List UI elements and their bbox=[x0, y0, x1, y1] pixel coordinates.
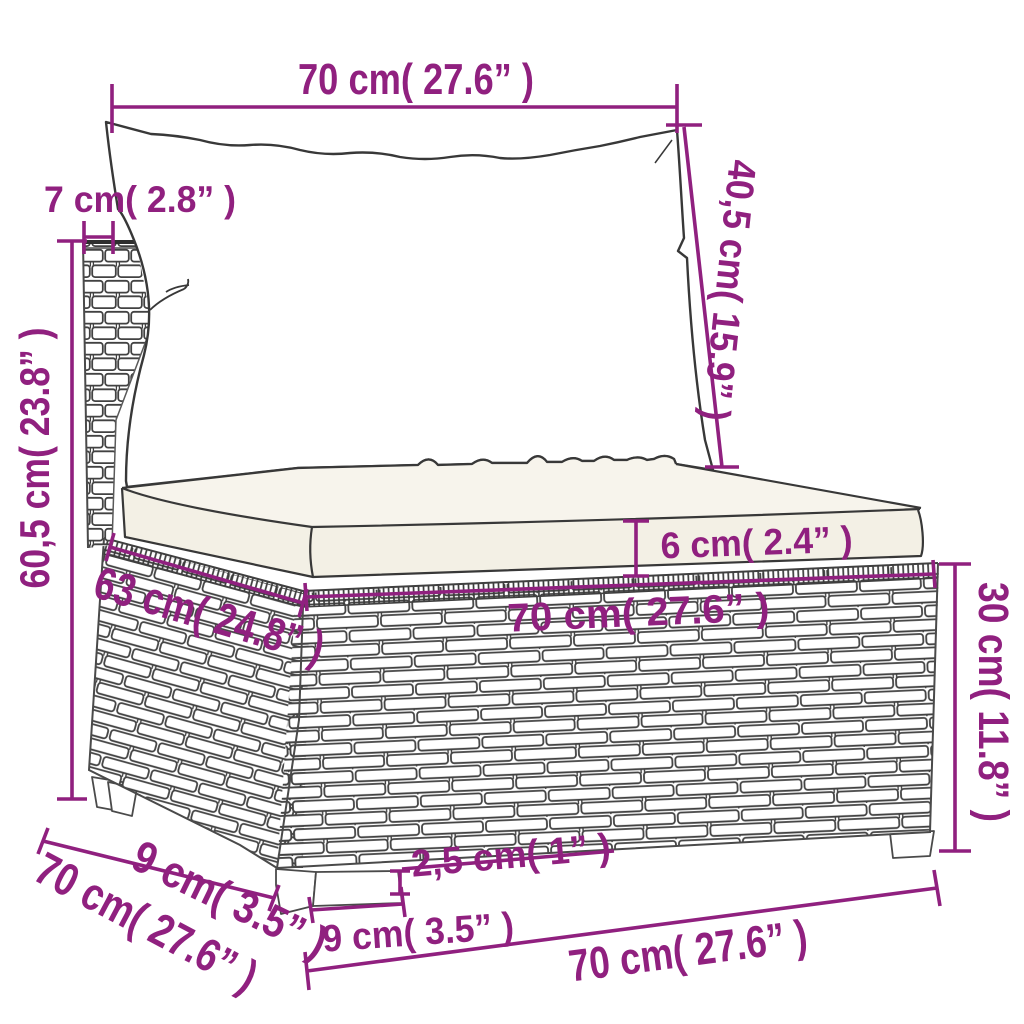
svg-text:7 cm( 2.8” ): 7 cm( 2.8” ) bbox=[44, 179, 236, 220]
svg-text:6 cm( 2.4” ): 6 cm( 2.4” ) bbox=[660, 519, 853, 567]
svg-text:30 cm( 11.8” ): 30 cm( 11.8” ) bbox=[969, 582, 1017, 822]
svg-text:60,5 cm( 23.8” ): 60,5 cm( 23.8” ) bbox=[11, 328, 58, 589]
svg-text:70 cm( 27.6” ): 70 cm( 27.6” ) bbox=[298, 55, 534, 104]
